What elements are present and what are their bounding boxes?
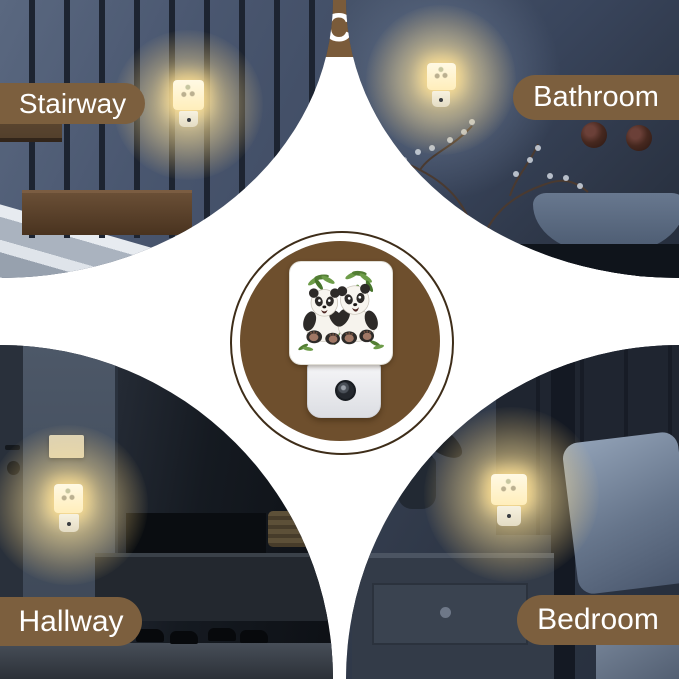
shoe — [170, 631, 198, 644]
label-bedroom: Bedroom — [517, 595, 679, 645]
night-light-base — [497, 506, 521, 526]
label-bathroom-text: Bathroom — [513, 81, 679, 114]
panda-artwork — [294, 266, 386, 358]
night-light-panel — [491, 474, 527, 505]
label-bathroom: Bathroom — [513, 75, 679, 120]
label-stairway: Stairway — [0, 83, 145, 124]
night-light-panel — [427, 63, 456, 90]
label-hallway-text: Hallway — [0, 605, 142, 639]
basket — [268, 511, 314, 547]
faucet-knob-left — [581, 122, 607, 148]
shoe — [240, 630, 268, 643]
night-light-panel — [173, 80, 204, 110]
drawer-knob — [440, 607, 451, 618]
label-hallway: Hallway — [0, 597, 142, 646]
label-bedroom-text: Bedroom — [517, 603, 679, 637]
faucet-knob-right — [626, 125, 652, 151]
label-stairway-text: Stairway — [0, 88, 145, 120]
night-light-base — [59, 514, 79, 532]
stairway-photo — [0, 0, 333, 278]
light-sensor — [335, 380, 356, 401]
bathroom-photo — [346, 0, 679, 278]
night-light-base — [179, 111, 198, 127]
product-usage-collage: USAGE SCENARIOS Stairway — [0, 0, 679, 679]
night-light-base — [432, 91, 450, 107]
product-plug-base — [307, 362, 381, 418]
hallway-floor — [0, 643, 333, 679]
shoe — [208, 628, 236, 641]
night-light-panel — [54, 484, 83, 513]
bench — [126, 513, 266, 553]
product-panel — [289, 261, 393, 365]
stair-handrail-lower — [22, 190, 192, 235]
